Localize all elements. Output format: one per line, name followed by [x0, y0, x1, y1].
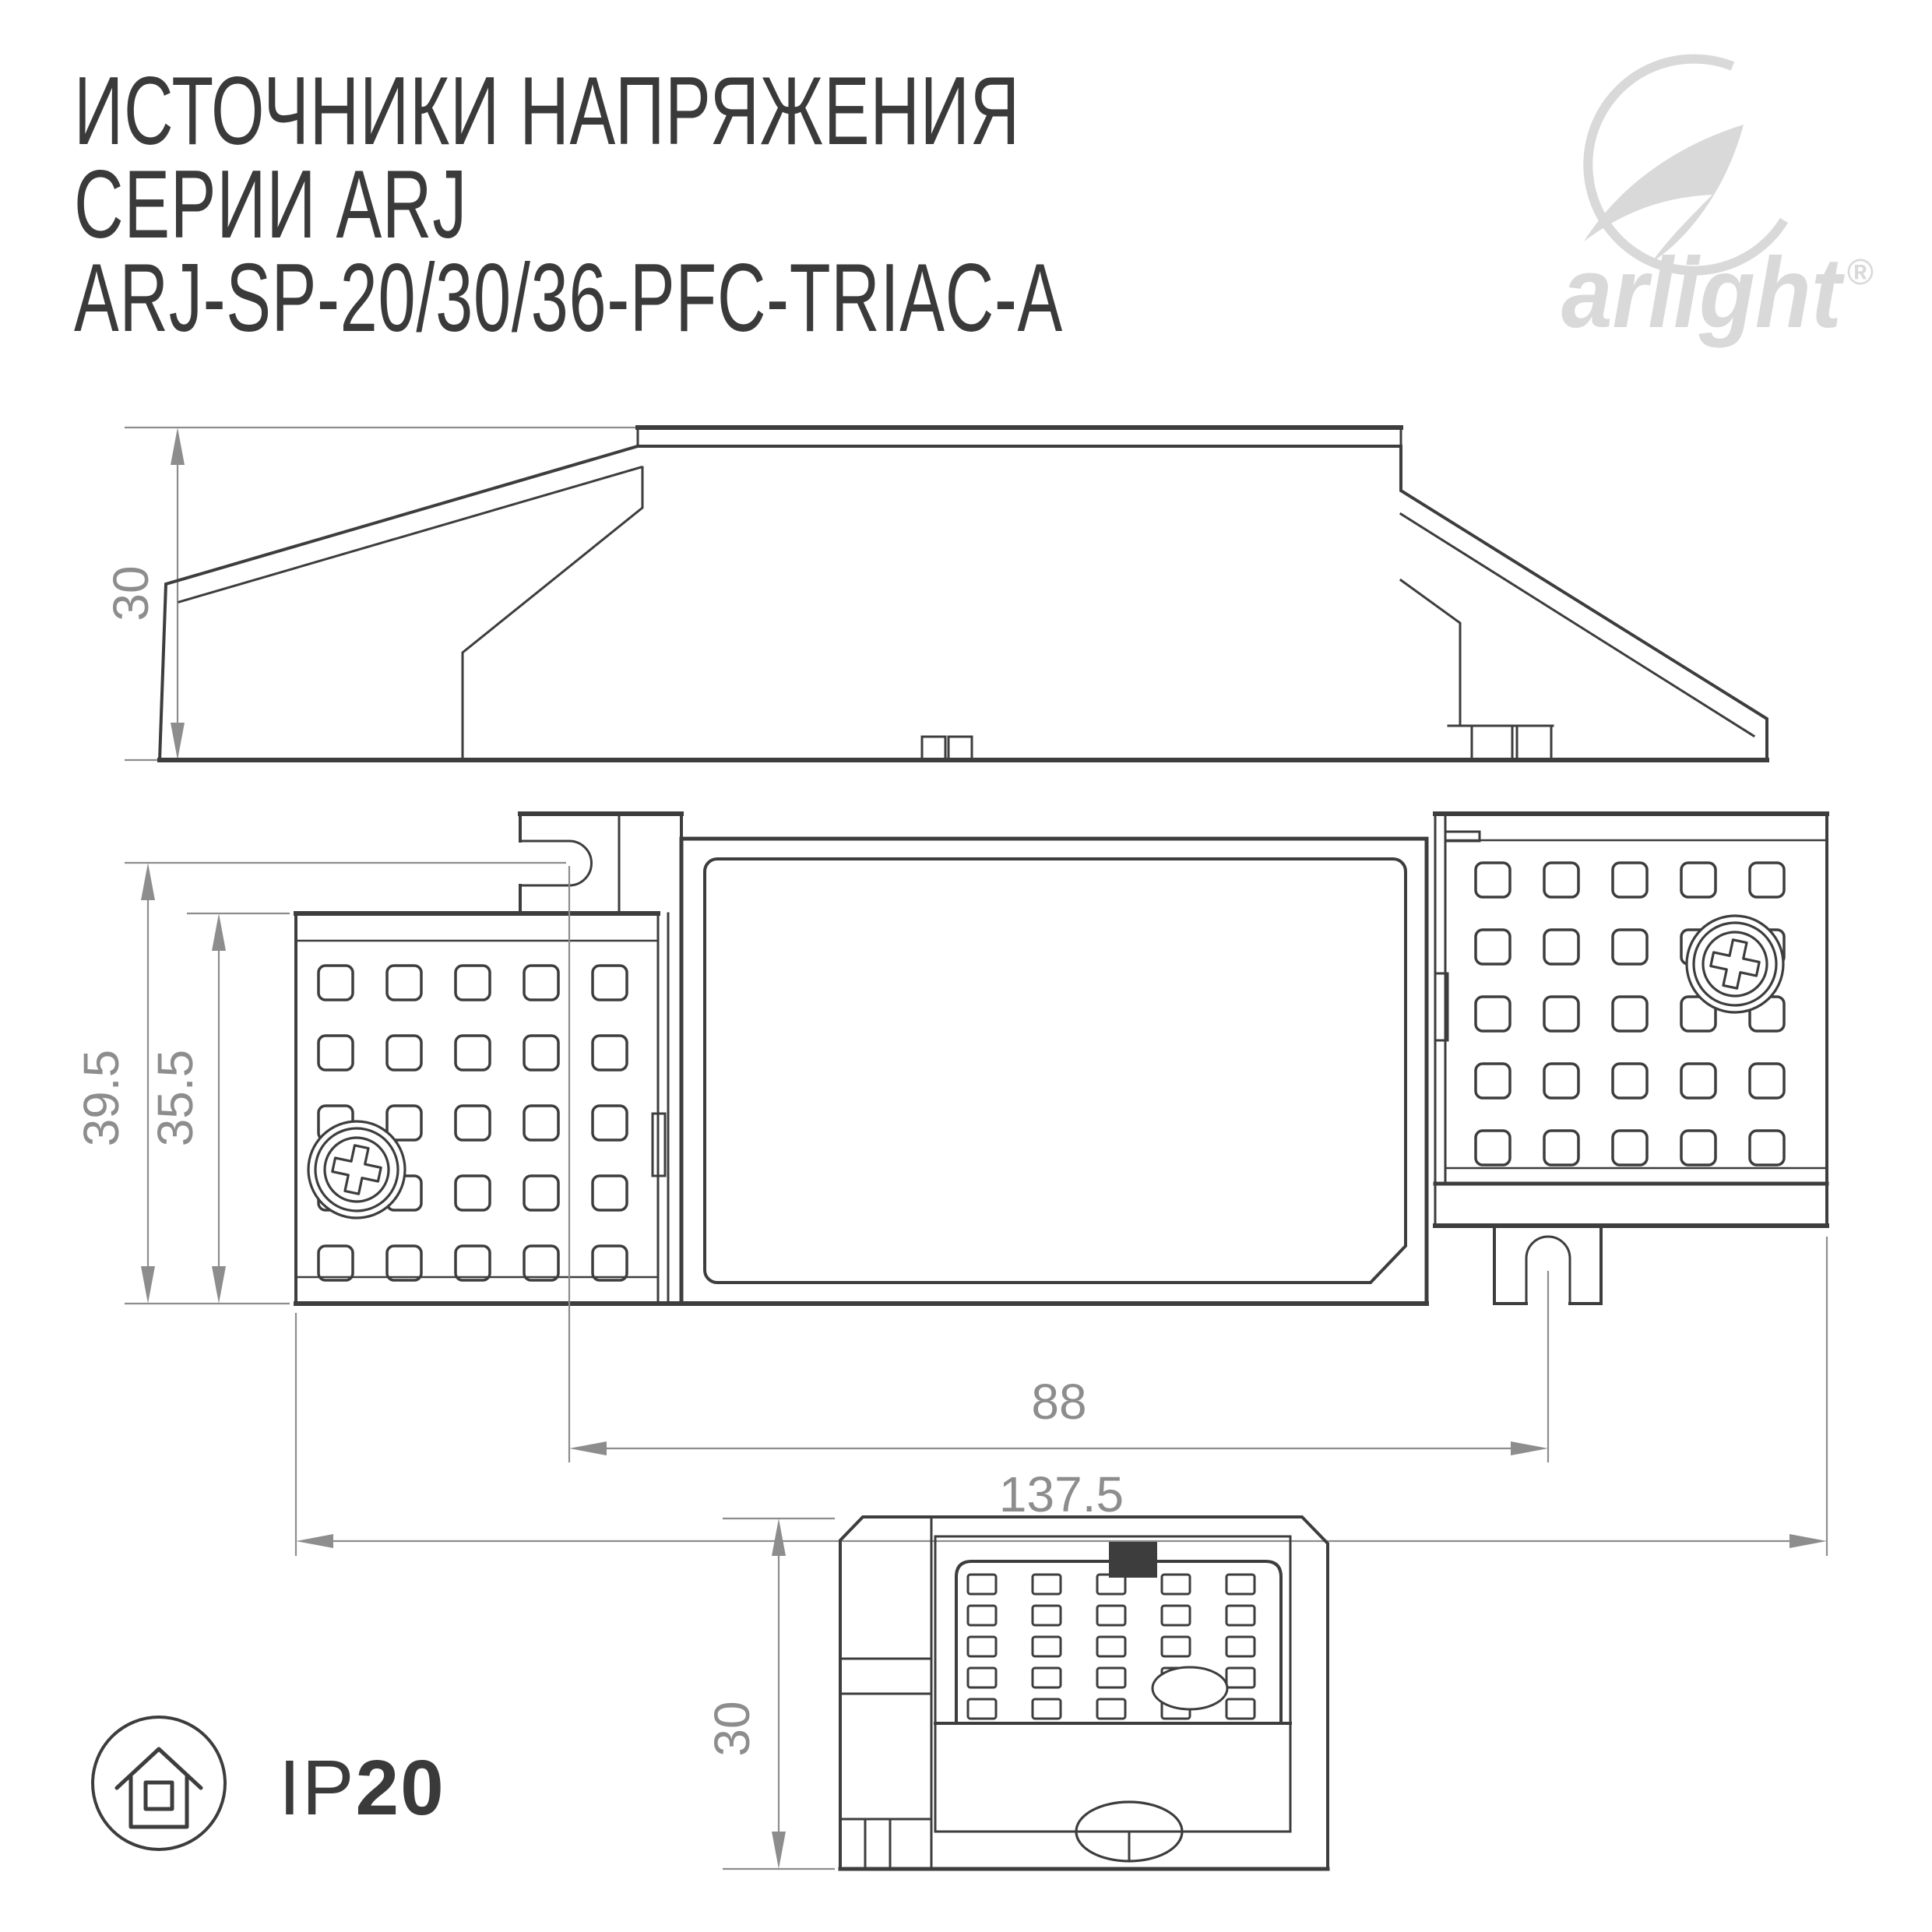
vent-hole	[1613, 997, 1647, 1031]
vent-hole	[1681, 1064, 1716, 1098]
vent-hole	[524, 1176, 558, 1210]
plan-dimension-88: 88	[569, 866, 1548, 1462]
vent-hole	[456, 966, 490, 1000]
vent-hole	[1162, 1606, 1190, 1625]
connector-black	[1109, 1542, 1157, 1578]
vent-hole	[968, 1575, 996, 1594]
end-inner-panel	[935, 1536, 1290, 1861]
vent-hole	[593, 966, 627, 1000]
side-height-label: 30	[103, 565, 159, 621]
vent-hole	[1033, 1668, 1061, 1687]
case-left-slope	[160, 446, 638, 760]
vent-hole	[524, 966, 558, 1000]
vent-hole	[593, 1106, 627, 1140]
vent-hole	[1033, 1575, 1061, 1594]
vent-hole	[1544, 997, 1578, 1031]
vent-hole	[1476, 863, 1510, 897]
end-view: 30	[704, 1517, 1328, 1869]
case-body	[681, 839, 1427, 1304]
case-right-inner-profile	[1401, 580, 1460, 726]
vent-hole	[1097, 1637, 1125, 1656]
vent-hole	[456, 1176, 490, 1210]
vent-hole	[524, 1106, 558, 1140]
title-line-3: ARJ-SP-20/30/36-PFC-TRIAC-A	[74, 245, 1063, 352]
vent-hole	[456, 1106, 490, 1140]
drawing-sheet: ИСТОЧНИКИ НАПРЯЖЕНИЯ СЕРИИ ARJ ARJ-SP-20…	[0, 0, 1932, 1932]
screw-right	[1677, 906, 1792, 1021]
vent-hole	[1681, 1131, 1716, 1165]
vent-hole	[1226, 1637, 1255, 1656]
vent-hole	[1544, 1064, 1578, 1098]
case-depth-label: 35.5	[147, 1050, 203, 1147]
plan-view: 39.5 35.5 88 137.5	[73, 814, 1827, 1556]
overall-depth-label: 39.5	[73, 1050, 129, 1147]
vent-hole	[1681, 863, 1716, 897]
vent-hole	[593, 1036, 627, 1070]
ip-prefix: IP	[279, 1744, 355, 1832]
vent-hole	[1097, 1699, 1125, 1719]
vent-hole	[968, 1699, 996, 1719]
terminal-block-left	[296, 913, 668, 1304]
vent-hole	[1226, 1699, 1255, 1719]
ip-value: 20	[355, 1744, 445, 1832]
case-lid	[705, 859, 1406, 1283]
end-view-dimension-30: 30	[704, 1519, 835, 1869]
vent-hole	[1476, 997, 1510, 1031]
vent-grid-right	[1476, 863, 1784, 1165]
vent-hole	[593, 1176, 627, 1210]
logo-brand-text: arlight	[1561, 238, 1845, 349]
vent-hole	[1226, 1575, 1255, 1594]
end-height-label: 30	[704, 1701, 760, 1756]
vent-hole	[387, 1036, 421, 1070]
vent-hole	[318, 1246, 353, 1280]
vent-hole	[1613, 930, 1647, 964]
vent-hole	[1476, 930, 1510, 964]
ip-rating-text: IP20	[279, 1744, 445, 1832]
arrow-down-icon	[171, 723, 185, 760]
vent-hole	[1750, 1064, 1784, 1098]
side-view: 30	[103, 428, 1767, 760]
side-view-feet	[922, 726, 1553, 760]
vent-hole	[968, 1668, 996, 1687]
plan-dimension-35-5: 35.5	[147, 913, 290, 1304]
title-line-1: ИСТОЧНИКИ НАПРЯЖЕНИЯ	[74, 58, 1020, 165]
vent-hole	[1162, 1575, 1190, 1594]
vent-hole	[456, 1246, 490, 1280]
vent-hole	[1226, 1668, 1255, 1687]
vent-hole	[1097, 1606, 1125, 1625]
vent-hole	[1226, 1606, 1255, 1625]
vent-hole	[1613, 1064, 1647, 1098]
mount-spacing-label: 88	[1031, 1374, 1086, 1430]
vent-hole	[387, 1246, 421, 1280]
vent-hole	[1162, 1637, 1190, 1656]
indoor-house-icon	[117, 1749, 201, 1827]
title-line-2: СЕРИИ ARJ	[74, 151, 467, 259]
overall-length-label: 137.5	[999, 1466, 1124, 1522]
vent-hole	[1476, 1064, 1510, 1098]
vent-hole	[968, 1606, 996, 1625]
title-block: ИСТОЧНИКИ НАПРЯЖЕНИЯ СЕРИИ ARJ ARJ-SP-20…	[74, 58, 1063, 352]
arrow-up-icon	[171, 428, 185, 465]
vent-hole	[1750, 863, 1784, 897]
knockout-oval-upper	[1153, 1667, 1227, 1709]
vent-hole	[456, 1036, 490, 1070]
vent-hole	[387, 1106, 421, 1140]
vent-hole	[524, 1036, 558, 1070]
end-mount-plate-strip	[840, 1517, 931, 1869]
vent-hole	[1033, 1606, 1061, 1625]
vent-hole	[1097, 1668, 1125, 1687]
vent-hole	[524, 1246, 558, 1280]
vent-hole	[318, 966, 353, 1000]
vent-hole	[968, 1637, 996, 1656]
ip20-badge: IP20	[93, 1717, 445, 1849]
technical-drawing: ИСТОЧНИКИ НАПРЯЖЕНИЯ СЕРИИ ARJ ARJ-SP-20…	[0, 0, 1932, 1932]
vent-hole	[1750, 1131, 1784, 1165]
vent-hole	[593, 1246, 627, 1280]
vent-hole	[1033, 1699, 1061, 1719]
vent-hole	[1544, 1131, 1578, 1165]
terminal-block-right	[1435, 814, 1827, 1226]
vent-hole	[1033, 1637, 1061, 1656]
arlight-logo: arlight ®	[1561, 59, 1874, 349]
vent-hole	[1613, 863, 1647, 897]
side-view-dimension-30: 30	[103, 428, 638, 760]
logo-registered-mark: ®	[1847, 252, 1874, 292]
vent-hole	[318, 1036, 353, 1070]
vent-hole	[1476, 1131, 1510, 1165]
vent-hole	[1544, 930, 1578, 964]
vent-hole	[1613, 1131, 1647, 1165]
vent-hole	[387, 966, 421, 1000]
vent-hole	[1544, 863, 1578, 897]
case-right-slope	[1401, 446, 1767, 760]
